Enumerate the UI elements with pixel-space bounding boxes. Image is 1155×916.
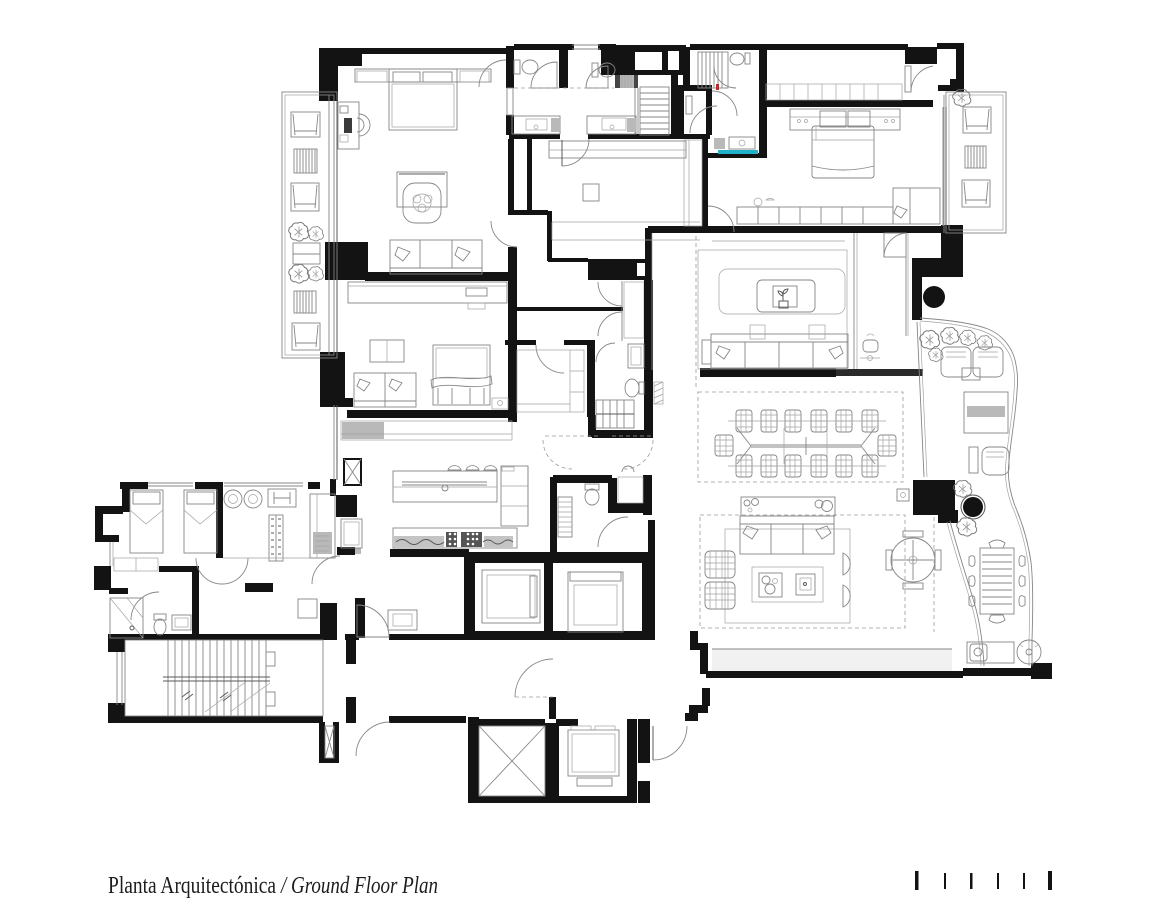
svg-text:Planta Arquitectónica: Planta Arquitectónica <box>108 873 276 899</box>
svg-text:/ Ground Floor Plan: / Ground Floor Plan <box>279 873 438 899</box>
